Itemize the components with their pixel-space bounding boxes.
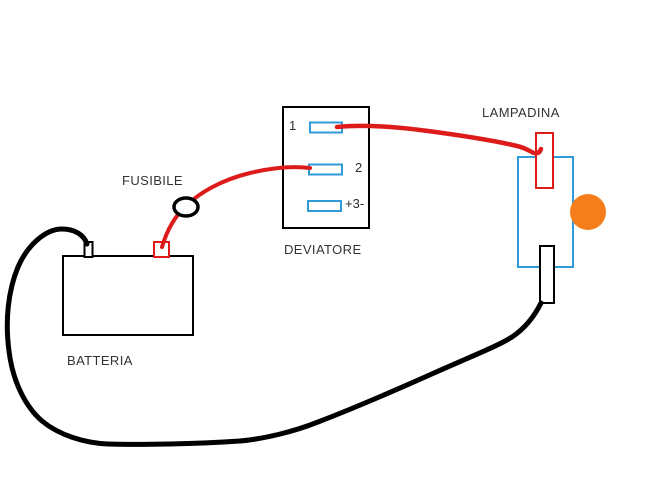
switch-terminal-3-label: +3-	[345, 196, 364, 211]
switch-terminal-2	[309, 165, 342, 175]
wiring-diagram-canvas: FUSIBILE BATTERIA DEVIATORE LAMPADINA 1 …	[0, 0, 667, 500]
switch-label: DEVIATORE	[284, 242, 362, 257]
battery-body	[63, 256, 193, 335]
fuse-icon	[174, 198, 198, 216]
lamp-label: LAMPADINA	[482, 105, 560, 120]
lamp-positive-terminal	[536, 133, 553, 188]
lamp-negative-terminal	[540, 246, 554, 303]
switch-terminal-2-label: 2	[355, 160, 362, 175]
switch-terminal-3	[308, 201, 341, 211]
bulb-icon	[570, 194, 606, 230]
fuse-label: FUSIBILE	[122, 173, 183, 188]
battery-label: BATTERIA	[67, 353, 133, 368]
switch-terminal-1-label: 1	[289, 118, 296, 133]
